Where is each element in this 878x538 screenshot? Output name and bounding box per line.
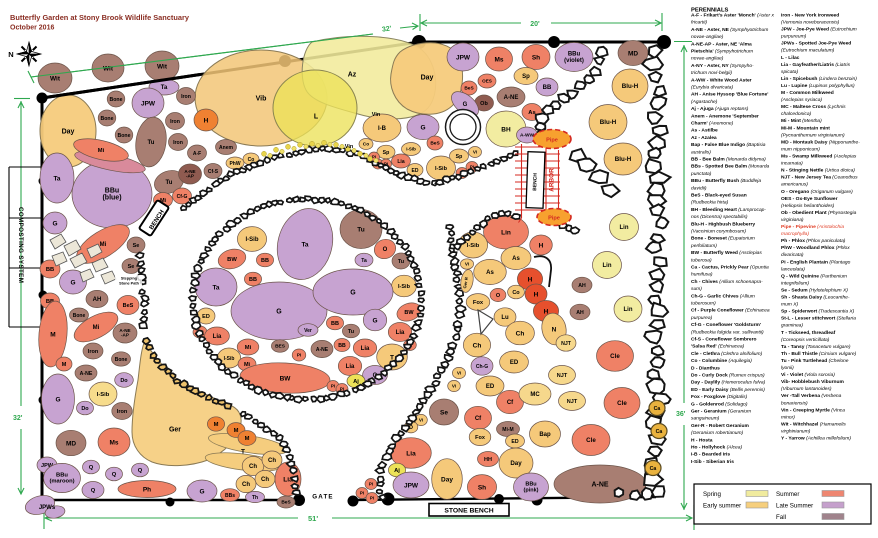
svg-text:Fall: Fall <box>776 514 786 521</box>
svg-text:(Viburnum lantanoides): (Viburnum lantanoides) <box>781 386 832 392</box>
svg-text:'Salsa Red' (Echinacea): 'Salsa Red' (Echinacea) <box>691 344 745 350</box>
svg-text:BBs: BBs <box>225 493 235 499</box>
svg-text:BB: BB <box>543 85 552 91</box>
svg-text:Cf: Cf <box>507 400 514 406</box>
svg-text:I-Sib: I-Sib <box>97 392 110 398</box>
svg-text:Bone: Bone <box>110 97 123 103</box>
svg-text:(Vernonia noveboracensis): (Vernonia noveboracensis) <box>781 20 840 26</box>
svg-text:St-L - Lesser stitchwort (Stel: St-L - Lesser stitchwort (Stellaria <box>781 316 856 322</box>
svg-text:Do: Do <box>81 406 89 412</box>
svg-text:Q - Wild Quinine (Parthenium: Q - Wild Quinine (Parthenium <box>781 273 847 279</box>
svg-text:PI: PI <box>370 496 374 501</box>
svg-text:NJT: NJT <box>557 373 568 379</box>
svg-text:Ta: Ta <box>53 175 60 182</box>
svg-text:I-Sib: I-Sib <box>435 166 448 172</box>
svg-text:Lin: Lin <box>603 263 612 269</box>
svg-text:JPW: JPW <box>404 482 419 489</box>
svg-text:MD: MD <box>66 440 76 447</box>
svg-text:BH: BH <box>501 126 511 133</box>
svg-text:A-NE-AP - Aster, NE 'Alma: A-NE-AP - Aster, NE 'Alma <box>691 41 752 47</box>
svg-text:Mi: Mi <box>93 325 100 331</box>
svg-text:O - Oregano (Origanum vulgare): O - Oregano (Origanum vulgare) <box>781 189 853 195</box>
svg-text:(Geranium robertianum): (Geranium robertianum) <box>691 430 744 436</box>
svg-text:Ms: Ms <box>494 56 503 63</box>
svg-text:ED: ED <box>511 439 518 445</box>
svg-text:M - Common Milkweed: M - Common Milkweed <box>781 90 834 96</box>
svg-text:Ca - Cactus, Prickly Pear (Opu: Ca - Cactus, Prickly Pear (Opuntia <box>691 265 769 271</box>
svg-text:H: H <box>534 291 539 298</box>
svg-text:Stepping: Stepping <box>121 277 138 281</box>
svg-text:BW: BW <box>280 375 292 382</box>
svg-text:H: H <box>204 117 209 124</box>
svg-text:Ob - Obedient Plant (Physosteg: Ob - Obedient Plant (Physostegia <box>781 210 857 216</box>
svg-text:G: G <box>350 289 356 296</box>
svg-text:BBu - Butterfly Bush (Buddleja: BBu - Butterfly Bush (Buddleja <box>691 178 761 184</box>
svg-text:H: H <box>528 276 533 283</box>
svg-text:Bone - Boneset (Eupatorium: Bone - Boneset (Eupatorium <box>691 236 755 242</box>
svg-text:Q: Q <box>112 472 117 478</box>
svg-text:Ca: Ca <box>654 406 661 412</box>
svg-text:Q: Q <box>138 468 143 474</box>
svg-text:punctata): punctata) <box>690 171 712 177</box>
svg-text:-AP: -AP <box>121 333 129 338</box>
svg-text:Summer: Summer <box>776 491 799 498</box>
svg-text:Co: Co <box>512 290 520 296</box>
svg-text:Lia: Lia <box>396 330 405 336</box>
svg-text:JPWs: JPWs <box>39 505 56 511</box>
svg-text:Ver -Tall Verbena (Verbena: Ver -Tall Verbena (Verbena <box>781 393 842 399</box>
svg-text:NJT - New Jersey Tea (Ceanothu: NJT - New Jersey Tea (Ceanothus <box>781 175 858 181</box>
svg-text:Blu-H: Blu-H <box>622 83 639 90</box>
svg-text:Mi-M: Mi-M <box>502 427 513 433</box>
svg-text:Az: Az <box>348 71 357 78</box>
svg-text:Day: Day <box>62 128 75 135</box>
svg-text:Cf-G - Coneflower 'Goldsturm': Cf-G - Coneflower 'Goldsturm' <box>691 322 761 328</box>
svg-text:Wit: Wit <box>50 75 61 82</box>
svg-text:(Vaccinium corymbosum): (Vaccinium corymbosum) <box>691 229 746 235</box>
svg-text:Ger: Ger <box>169 426 181 433</box>
svg-text:Iron: Iron <box>88 349 99 355</box>
svg-text:Se: Se <box>440 409 448 416</box>
svg-text:virginiana): virginiana) <box>781 217 804 223</box>
svg-text:Blu-H: Blu-H <box>615 156 632 163</box>
svg-text:Do - Curly Dock (Rumex crispus: Do - Curly Dock (Rumex crispus) <box>691 373 765 379</box>
svg-text:ED: ED <box>510 360 519 366</box>
svg-text:Co: Co <box>363 142 369 148</box>
svg-text:A-WW - White Wood Aster: A-WW - White Wood Aster <box>691 77 752 83</box>
svg-text:Cle: Cle <box>617 400 627 407</box>
svg-text:MC: MC <box>530 392 540 398</box>
svg-text:Cle: Cle <box>610 353 620 360</box>
svg-text:Bap - False Blue Indigo (Bapti: Bap - False Blue Indigo (Baptisia <box>691 142 766 148</box>
svg-text:Ch: Ch <box>516 330 525 337</box>
svg-text:BeS: BeS <box>430 141 440 147</box>
svg-text:spicata): spicata) <box>781 69 798 75</box>
svg-text:Blu-H - Highbush Blueberry: Blu-H - Highbush Blueberry <box>691 221 755 227</box>
svg-text:novae-angliae): novae-angliae) <box>691 34 724 40</box>
svg-text:MD - Montauk Daisy (Nipponanth: MD - Montauk Daisy (Nipponanthe- <box>781 139 860 145</box>
svg-text:Y - Yarrow (Achillea millefoli: Y - Yarrow (Achillea millefolium) <box>781 436 851 442</box>
svg-text:GATE: GATE <box>312 494 334 501</box>
svg-text:BB: BB <box>46 267 54 273</box>
svg-text:Co - Columbine (Aquilegia): Co - Columbine (Aquilegia) <box>691 358 752 364</box>
svg-text:Iron: Iron <box>181 94 191 100</box>
svg-text:BBu: BBu <box>105 187 119 194</box>
svg-text:(Asclepias syriaca): (Asclepias syriaca) <box>781 97 822 103</box>
svg-text:Vi - Violet (Viola sororia): Vi - Violet (Viola sororia) <box>781 372 835 378</box>
svg-text:BENCH: BENCH <box>532 173 539 191</box>
svg-text:macrophylla): macrophylla) <box>781 231 809 237</box>
svg-text:BB: BB <box>249 277 257 283</box>
svg-text:A-F: A-F <box>193 151 201 157</box>
svg-text:T: T <box>241 448 245 455</box>
svg-text:I-Sib: I-Sib <box>246 237 259 243</box>
svg-text:BH - Bleeding Heart (Lamprocap: BH - Bleeding Heart (Lamprocap- <box>691 207 766 213</box>
svg-text:A-WW: A-WW <box>520 133 535 139</box>
svg-text:A-NE: A-NE <box>80 371 93 377</box>
svg-text:BB - Bee Balm (Monarda didyma): BB - Bee Balm (Monarda didyma) <box>691 157 766 163</box>
svg-text:BB: BB <box>338 343 346 349</box>
svg-text:32': 32' <box>382 25 393 33</box>
svg-text:L: L <box>314 113 319 120</box>
svg-text:Ch: Ch <box>249 464 257 470</box>
svg-text:A-F - Frikart's Aster 'Monch': A-F - Frikart's Aster 'Monch' (Aster x <box>691 13 774 19</box>
svg-text:Mi: Mi <box>100 242 107 248</box>
svg-text:Late Summer: Late Summer <box>776 503 813 510</box>
svg-text:M: M <box>245 436 250 442</box>
svg-text:G: G <box>52 220 57 227</box>
svg-text:-AP: -AP <box>186 174 194 179</box>
svg-text:51': 51' <box>308 514 318 523</box>
svg-text:Charm' (Anemone): Charm' (Anemone) <box>691 121 734 127</box>
svg-text:Wit: Wit <box>157 63 168 70</box>
svg-text:(Agastache): (Agastache) <box>691 99 718 105</box>
svg-text:OES - Ox-Eye Sunflower: OES - Ox-Eye Sunflower <box>781 196 838 202</box>
svg-text:Mi-M - Mountain mint: Mi-M - Mountain mint <box>781 125 830 131</box>
svg-text:JPW - Joe-Pye Weed (Eutrochium: JPW - Joe-Pye Weed (Eutrochium <box>781 27 857 33</box>
svg-text:I-B: I-B <box>378 126 387 132</box>
svg-text:I-B - Bearded Iris: I-B - Bearded Iris <box>691 452 730 458</box>
svg-text:Ch: Ch <box>242 482 250 488</box>
svg-text:Bone: Bone <box>115 357 128 363</box>
svg-text:Vib- Hobblebush Viburnum: Vib- Hobblebush Viburnum <box>781 379 845 385</box>
svg-text:I-Sib: I-Sib <box>467 243 480 249</box>
svg-text:Q: Q <box>91 488 96 494</box>
svg-text:ED: ED <box>412 168 419 174</box>
svg-text:novae-angliae): novae-angliae) <box>691 56 724 62</box>
svg-text:Vi: Vi <box>452 384 456 389</box>
svg-text:Vin - Creeping Myrtle (Vinca: Vin - Creeping Myrtle (Vinca <box>781 407 845 413</box>
svg-text:BW: BW <box>227 257 237 263</box>
svg-text:Sp: Sp <box>522 74 530 80</box>
svg-text:PI: PI <box>331 384 335 389</box>
svg-text:BeS: BeS <box>464 86 474 92</box>
svg-text:Anem: Anem <box>219 145 233 151</box>
svg-text:G: G <box>372 317 377 324</box>
svg-text:Day: Day <box>510 460 522 467</box>
svg-text:Bone: Bone <box>118 133 131 139</box>
svg-text:minor): minor) <box>781 414 795 420</box>
svg-text:Iron - New York Ironweed: Iron - New York Ironweed <box>781 13 839 19</box>
svg-text:COMPOSTING SYSTEM: COMPOSTING SYSTEM <box>17 207 24 283</box>
svg-text:Lia: Lia <box>346 364 355 370</box>
svg-text:Sp - Spiderwort (Tradescantia: Sp - Spiderwort (Tradescantia X) <box>781 309 855 315</box>
svg-text:PI: PI <box>369 482 373 487</box>
svg-text:Ph: Ph <box>143 486 151 493</box>
svg-text:nos (Dicentra) spectabilis): nos (Dicentra) spectabilis) <box>691 214 748 220</box>
svg-text:BeS: BeS <box>281 500 291 506</box>
svg-text:Fox: Fox <box>475 435 486 441</box>
svg-text:Ta: Ta <box>212 284 219 291</box>
svg-text:Aj: Aj <box>394 468 400 474</box>
svg-text:Vi: Vi <box>473 150 477 155</box>
svg-text:Az - Azalea: Az - Azalea <box>691 135 717 141</box>
svg-text:A-NE - Aster, NE (Symphyotrich: A-NE - Aster, NE (Symphyotrichum <box>691 27 768 33</box>
svg-text:Lu: Lu <box>501 315 509 321</box>
svg-text:Do: Do <box>120 378 128 384</box>
svg-text:JPW: JPW <box>141 100 156 107</box>
svg-text:Mi: Mi <box>245 345 252 351</box>
svg-text:PI - English Plantain (Plantag: PI - English Plantain (Plantago <box>781 259 851 265</box>
svg-text:Cle: Cle <box>586 437 596 444</box>
svg-text:Blu-H: Blu-H <box>600 119 617 126</box>
svg-text:perfoliatum): perfoliatum) <box>690 243 717 249</box>
svg-text:MC - Maltese Cross (Lychnis: MC - Maltese Cross (Lychnis <box>781 104 846 110</box>
svg-text:G - Goldenrod (Solidago): G - Goldenrod (Solidago) <box>691 401 748 407</box>
svg-text:lanceolata): lanceolata) <box>781 266 805 272</box>
svg-text:M: M <box>234 428 239 434</box>
svg-text:Lia: Lia <box>361 346 370 352</box>
svg-text:Ger - Geranium (Geranium: Ger - Geranium (Geranium <box>691 409 751 415</box>
svg-text:T - Tickseed, threadleaf: T - Tickseed, threadleaf <box>781 330 836 336</box>
svg-text:M: M <box>50 331 55 338</box>
svg-text:JPWs - Spotted Joe-Pye Weed: JPWs - Spotted Joe-Pye Weed <box>781 41 851 47</box>
svg-text:Spring: Spring <box>703 491 721 498</box>
svg-text:Tu: Tu <box>348 329 354 335</box>
svg-text:ED: ED <box>202 314 210 320</box>
svg-text:H: H <box>539 242 544 249</box>
svg-text:incarnata): incarnata) <box>781 161 803 167</box>
svg-text:(Rudbeckia fulgida var. sulliv: (Rudbeckia fulgida var. sullivantii) <box>691 329 764 335</box>
svg-text:H - Hosta: H - Hosta <box>691 437 713 443</box>
svg-text:As - Astilbe: As - Astilbe <box>691 128 718 134</box>
svg-text:Cf-S - Coneflower Sombrero: Cf-S - Coneflower Sombrero <box>691 337 756 343</box>
svg-text:G: G <box>55 396 60 403</box>
svg-text:Lia: Lia <box>397 159 404 165</box>
svg-text:Ca: Ca <box>650 466 657 472</box>
svg-text:Tu: Tu <box>398 259 404 265</box>
svg-text:Ph - Phlox (Phlox paniculata): Ph - Phlox (Phlox paniculata) <box>781 238 846 244</box>
svg-text:PhW: PhW <box>229 161 240 167</box>
svg-text:20': 20' <box>530 21 540 28</box>
svg-text:Pipe: Pipe <box>548 216 560 222</box>
svg-text:Vi: Vi <box>465 262 469 267</box>
svg-text:A-NE: A-NE <box>591 481 608 488</box>
svg-text:Ver: Ver <box>304 328 312 334</box>
svg-text:Mi: Mi <box>98 148 105 154</box>
svg-text:fricartii): fricartii) <box>691 20 707 26</box>
svg-text:Sh: Sh <box>532 54 540 61</box>
svg-text:Bone: Bone <box>73 313 86 319</box>
svg-text:I-Sib: I-Sib <box>398 284 411 290</box>
svg-text:Tu - Pink Turtlehead (Chelone: Tu - Pink Turtlehead (Chelone <box>781 358 849 364</box>
svg-text:Fox - Foxglove (Digitalis): Fox - Foxglove (Digitalis) <box>691 394 748 400</box>
svg-text:PI: PI <box>297 353 301 358</box>
svg-text:Fox: Fox <box>473 300 484 306</box>
svg-text:Tu: Tu <box>357 226 364 233</box>
svg-text:Th: Th <box>252 495 258 501</box>
svg-text:Day: Day <box>421 74 434 81</box>
svg-text:bonariensis): bonariensis) <box>781 400 808 406</box>
svg-text:davidii): davidii) <box>691 185 707 191</box>
svg-text:M: M <box>214 422 219 428</box>
svg-text:Iron: Iron <box>170 119 180 125</box>
svg-text:AH: AH <box>93 297 102 303</box>
svg-text:(Rudbeckia hirta): (Rudbeckia hirta) <box>691 200 729 206</box>
svg-text:STONE BENCH: STONE BENCH <box>444 508 493 515</box>
svg-text:Ms - Swamp Milkweed (Asclepias: Ms - Swamp Milkweed (Asclepias <box>781 154 857 160</box>
svg-text:Vi: Vi <box>419 418 423 423</box>
svg-text:BB: BB <box>261 258 269 264</box>
svg-text:N: N <box>552 326 557 333</box>
svg-text:BeS: BeS <box>123 303 134 309</box>
svg-text:AH: AH <box>578 283 586 289</box>
svg-text:ED - Early Daisy (Bellis peren: ED - Early Daisy (Bellis perennis) <box>691 387 765 393</box>
svg-text:I-Sib: I-Sib <box>406 147 416 152</box>
svg-text:Day: Day <box>441 476 453 483</box>
svg-text:PI: PI <box>360 491 364 496</box>
svg-text:Pietschia' (Sympyhotrichum: Pietschia' (Sympyhotrichum <box>691 49 753 55</box>
svg-text:D - Dianthus: D - Dianthus <box>691 365 720 371</box>
svg-text:Ch: Ch <box>473 342 482 349</box>
svg-text:Ch - Chives (Allium schoenapra: Ch - Chives (Allium schoenapra- <box>691 279 763 285</box>
svg-text:Se - Sedum (Hylotelephium X): Se - Sedum (Hylotelephium X) <box>781 288 848 294</box>
svg-text:Mi - Mint (Mentha): Mi - Mint (Mentha) <box>781 118 822 124</box>
svg-text:I-Sib: I-Sib <box>224 356 235 362</box>
svg-text:NJT: NJT <box>567 399 578 405</box>
svg-text:BBs - Spotted Bee Balm (Monard: BBs - Spotted Bee Balm (Monarda <box>691 164 770 170</box>
svg-text:Aj: Aj <box>353 379 359 385</box>
svg-text:32': 32' <box>13 415 23 422</box>
svg-text:Lin: Lin <box>501 229 511 236</box>
svg-text:Ta: Ta <box>361 258 367 264</box>
svg-text:As: As <box>512 256 520 262</box>
svg-text:NJT: NJT <box>561 341 572 347</box>
svg-text:Wit - Witchhazel (Hamamelis: Wit - Witchhazel (Hamamelis <box>781 421 846 427</box>
svg-text:BeS - Black-eyed Susan: BeS - Black-eyed Susan <box>691 193 747 199</box>
svg-text:(Eurybia divaricata): (Eurybia divaricata) <box>691 85 734 91</box>
svg-text:Ob: Ob <box>480 101 488 107</box>
svg-text:trichum novi-belgii): trichum novi-belgii) <box>691 70 732 76</box>
svg-text:Cle - Clethra (Clethra alnifol: Cle - Clethra (Clethra alnifolium) <box>691 351 763 357</box>
svg-text:Iron: Iron <box>117 409 128 415</box>
svg-text:Iron: Iron <box>173 140 183 146</box>
svg-text:lyonii): lyonii) <box>781 365 794 371</box>
svg-text:Ta - Tansy (Tanacetum vulgare): Ta - Tansy (Tanacetum vulgare) <box>781 344 851 350</box>
svg-text:(Pycnanthemum virginianum): (Pycnanthemum virginianum) <box>781 132 845 138</box>
svg-text:36': 36' <box>676 411 686 418</box>
svg-text:integrifolium): integrifolium) <box>781 280 809 286</box>
svg-text:O: O <box>383 247 388 253</box>
svg-text:BW: BW <box>404 310 414 316</box>
svg-text:Th - Bull Thistle (Cirsium vul: Th - Bull Thistle (Cirsium vulgare) <box>781 351 857 357</box>
svg-text:Se: Se <box>133 243 140 249</box>
svg-text:Vib: Vib <box>256 95 267 102</box>
svg-text:Pipe - Pipevine (Aristolochia: Pipe - Pipevine (Aristolochia <box>781 224 844 230</box>
svg-text:(Eutrochium maculatum): (Eutrochium maculatum) <box>781 48 835 54</box>
svg-text:PhW - Woodland Phlox (Phlox: PhW - Woodland Phlox (Phlox <box>781 245 850 251</box>
svg-text:(maroon): (maroon) <box>49 479 74 485</box>
svg-text:purpurea): purpurea) <box>690 315 713 321</box>
svg-text:Cf - Purple Coneflower (Echina: Cf - Purple Coneflower (Echinacea <box>691 308 770 314</box>
svg-text:Lin: Lin <box>624 307 633 313</box>
svg-text:Lia - Gayfeather/Liatris (Liat: Lia - Gayfeather/Liatris (Liatris <box>781 62 851 68</box>
svg-text:divaricata): divaricata) <box>781 252 804 258</box>
svg-text:Aj - Ajuga (Ajuga reptans): Aj - Ajuga (Ajuga reptans) <box>691 106 749 112</box>
svg-text:Sh - Shasta Daisy (Leucanthe-: Sh - Shasta Daisy (Leucanthe- <box>781 295 850 301</box>
svg-text:Tu: Tu <box>148 140 155 146</box>
svg-text:Stone Path: Stone Path <box>119 282 140 286</box>
svg-text:A-NE: A-NE <box>504 95 519 101</box>
svg-text:G: G <box>420 124 425 131</box>
svg-text:Cf-G: Cf-G <box>177 194 188 200</box>
svg-text:AH: AH <box>576 310 584 316</box>
svg-text:australis): australis) <box>691 149 711 155</box>
svg-text:(violet): (violet) <box>564 58 584 64</box>
svg-text:G: G <box>463 102 468 108</box>
svg-text:(Heliopsis helianthoides): (Heliopsis helianthoides) <box>781 203 835 209</box>
svg-text:mum X): mum X) <box>781 302 798 308</box>
svg-text:Early summer: Early summer <box>703 503 741 510</box>
svg-text:Ho - Hollyhock (Alcea): Ho - Hollyhock (Alcea) <box>691 445 742 451</box>
svg-text:Sh: Sh <box>478 484 486 491</box>
svg-text:M: M <box>62 362 67 368</box>
svg-text:Ch: Ch <box>268 458 276 464</box>
svg-text:americanus): americanus) <box>781 182 808 188</box>
svg-text:BES: BES <box>275 344 286 350</box>
svg-text:tuberosa): tuberosa) <box>691 257 712 263</box>
svg-text:BBu: BBu <box>568 52 581 58</box>
svg-text:A-NY - Aster, NY (Sympyho-: A-NY - Aster, NY (Sympyho- <box>691 63 754 69</box>
svg-text:Day - Daylily (Hemerocalus ful: Day - Daylily (Hemerocalus fulva) <box>691 380 766 386</box>
svg-text:sum): sum) <box>691 286 702 292</box>
svg-text:Bone: Bone <box>101 116 114 122</box>
svg-text:O: O <box>496 293 501 299</box>
svg-text:G: G <box>199 488 204 495</box>
svg-text:Vin: Vin <box>345 144 354 150</box>
svg-text:Ms: Ms <box>109 439 118 446</box>
svg-text:L - Lilac: L - Lilac <box>781 55 800 61</box>
svg-text:Lia: Lia <box>213 334 222 340</box>
svg-text:purpureum): purpureum) <box>780 34 807 40</box>
svg-text:Sp: Sp <box>383 150 390 156</box>
svg-text:BW - Butterfly Weed (Asclepias: BW - Butterfly Weed (Asclepias <box>691 250 762 256</box>
svg-text:ARBOR: ARBOR <box>549 168 556 192</box>
svg-text:BB: BB <box>331 321 339 327</box>
svg-text:HH: HH <box>484 457 492 463</box>
svg-text:Q: Q <box>89 465 94 471</box>
svg-text:Ch-G - Garlic Chives (Allium: Ch-G - Garlic Chives (Allium <box>691 293 755 299</box>
svg-text:A-NE: A-NE <box>316 347 329 353</box>
svg-text:humifusa): humifusa) <box>691 272 713 278</box>
svg-text:sanguineum): sanguineum) <box>691 416 720 422</box>
svg-text:ED: ED <box>486 384 495 390</box>
svg-text:Sp: Sp <box>456 154 463 160</box>
svg-text:Ger-R - Robert Geranium: Ger-R - Robert Geranium <box>691 423 750 429</box>
svg-text:Ca: Ca <box>656 429 663 435</box>
svg-text:OES: OES <box>482 79 492 84</box>
svg-text:JPW: JPW <box>456 54 471 61</box>
